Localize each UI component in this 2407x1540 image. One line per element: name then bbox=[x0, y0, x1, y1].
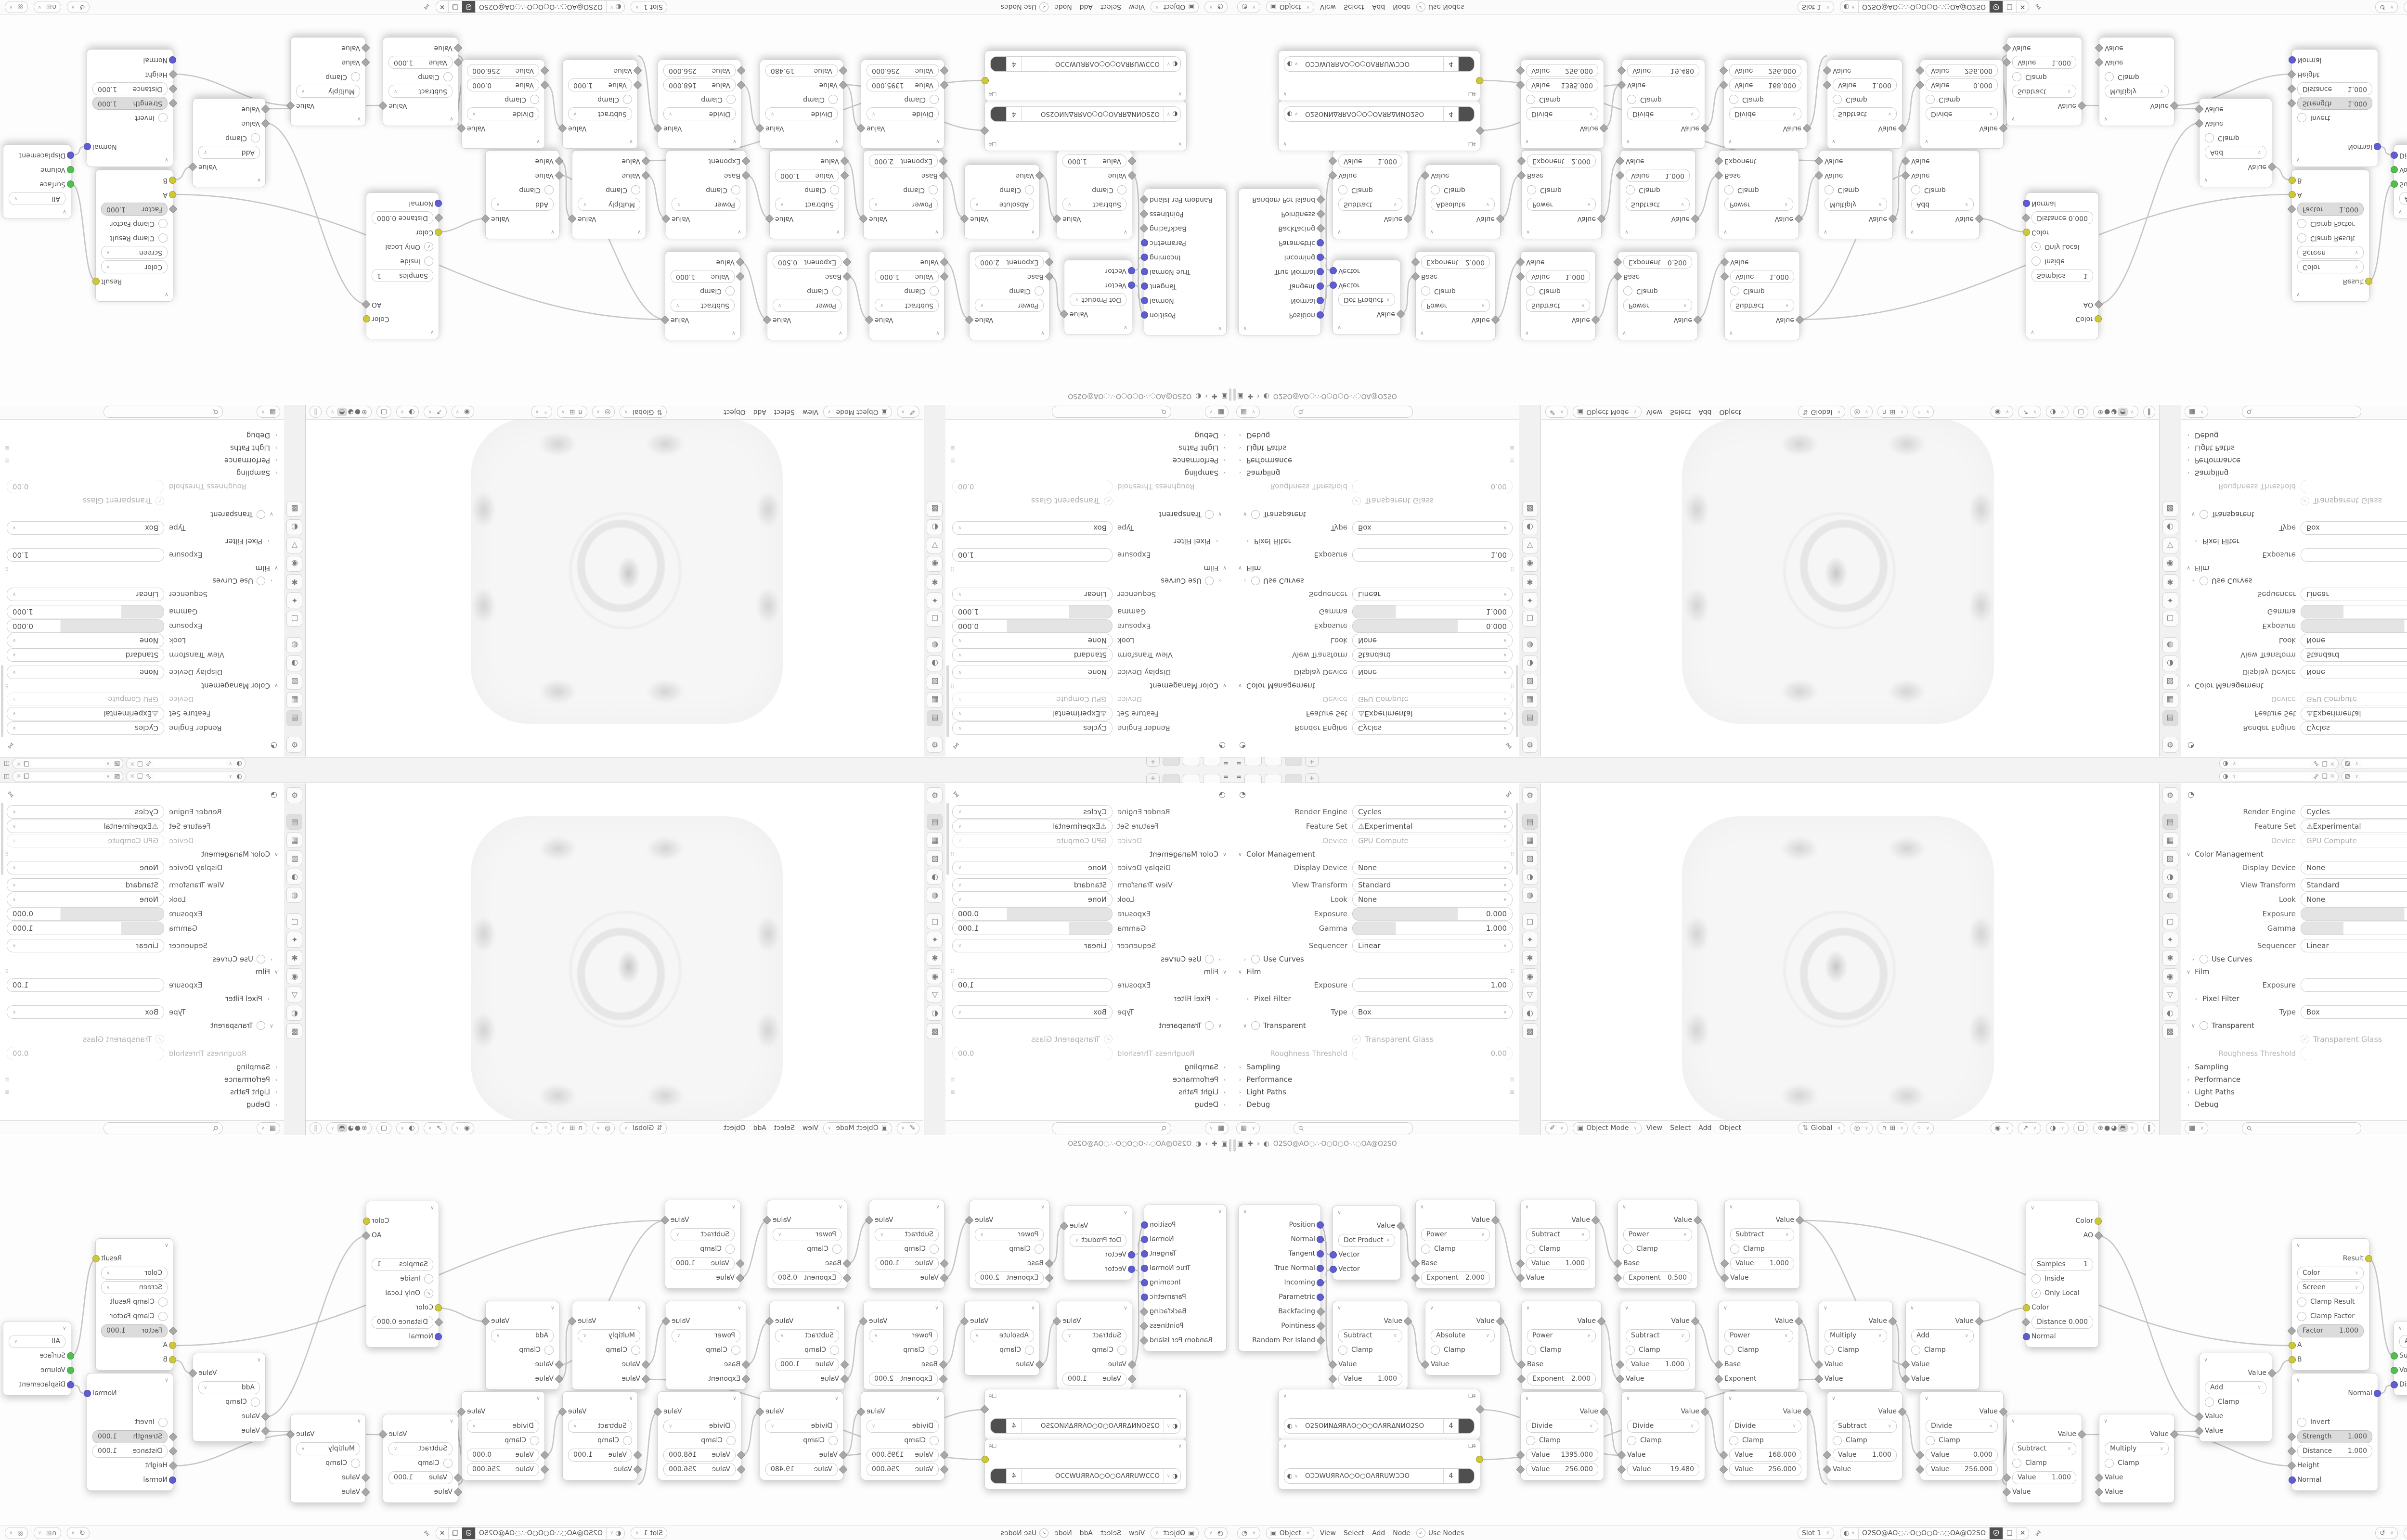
menu-select[interactable]: Select bbox=[1344, 3, 1364, 11]
input-socket[interactable] bbox=[435, 1304, 442, 1311]
pin-icon[interactable] bbox=[423, 4, 430, 11]
node-collapse-chevron[interactable]: ∨ bbox=[1920, 136, 2003, 148]
number-field[interactable]: Value1.000 bbox=[775, 169, 839, 182]
properties-tab-scene[interactable]: ◑ bbox=[287, 869, 303, 885]
panel-header-use-curves[interactable]: ›Use Curves bbox=[0, 575, 284, 587]
node-math[interactable]: ∨ValuePower∨ClampBaseExponent bbox=[1719, 150, 1799, 239]
view-layer-selector[interactable]: ▧∨❏✕ bbox=[2342, 758, 2407, 770]
header-tool-icon-2[interactable]: ◎∨ bbox=[5, 1527, 28, 1539]
checkbox[interactable]: ✓ bbox=[2032, 243, 2041, 252]
number-field[interactable]: Factor1.000 bbox=[2297, 203, 2364, 216]
mode-dropdown[interactable]: ▣Object Mode∨ bbox=[823, 1122, 892, 1134]
visibility-dropdown[interactable]: ◉∨ bbox=[452, 1122, 475, 1134]
hamburger-menu-icon[interactable]: ≡ bbox=[1236, 760, 1242, 768]
panel-header-transparent[interactable]: ∨Transparent bbox=[2181, 508, 2407, 521]
input-socket[interactable] bbox=[2023, 200, 2030, 207]
panel-header-film[interactable]: ∨Film⠿ bbox=[945, 965, 1232, 978]
properties-tab-output[interactable]: ▦ bbox=[2162, 692, 2178, 708]
panel-header-light-paths[interactable]: ›Light Paths≣ bbox=[2181, 442, 2407, 454]
dropdown-type[interactable]: Box∨ bbox=[2301, 521, 2407, 535]
panel-header-light-paths[interactable]: ›Light Paths≣ bbox=[0, 1086, 284, 1098]
users-count[interactable]: 4 bbox=[1007, 57, 1022, 71]
dropdown-type[interactable]: Box∨ bbox=[2301, 1005, 2407, 1019]
dropdown-look[interactable]: None∨ bbox=[7, 893, 164, 906]
node-collapse-chevron[interactable]: ∨ bbox=[864, 226, 943, 239]
node-link[interactable] bbox=[266, 1236, 367, 1417]
dropdown-type[interactable]: Box∨ bbox=[1352, 521, 1513, 535]
overlays-dropdown[interactable]: ◑∨ bbox=[396, 406, 419, 418]
checkbox[interactable] bbox=[1627, 1436, 1636, 1445]
output-socket[interactable] bbox=[982, 77, 989, 84]
node-math[interactable]: ∨ValueSubtract∨ClampValue1.000Value bbox=[869, 1200, 945, 1289]
node-bump[interactable]: ∨NormalInvertStrength1.000Distance1.000H… bbox=[2291, 1373, 2378, 1491]
snap-controls[interactable]: ∩⊞∨ bbox=[557, 406, 587, 418]
pin-icon[interactable] bbox=[145, 773, 152, 780]
enum-dropdown[interactable]: Subtract∨ bbox=[568, 108, 632, 121]
shader-node-editor[interactable]: ▣✚›◐O2SO@AO◌∴·O○O○O·∴◌OA@O2SO∨PositionNo… bbox=[1232, 1136, 2407, 1526]
number-field[interactable]: Exponent0.500 bbox=[1623, 256, 1692, 269]
node-image-datablock[interactable]: ∨❏4◐∨OƆƆWUЯRΛO○O○OΛЯRUWƆƆO4 bbox=[984, 51, 1187, 101]
node-link[interactable] bbox=[847, 1220, 870, 1264]
node-math[interactable]: ∨ValuePower∨ClampBaseExponent2.000 bbox=[863, 1301, 944, 1390]
panel-header-film[interactable]: ∨Film⠿ bbox=[1232, 562, 1519, 575]
checkbox[interactable] bbox=[2032, 1274, 2041, 1283]
panel-header-use-curves[interactable]: ›Use Curves bbox=[1232, 575, 1519, 587]
node-collapse-chevron[interactable]: ∨ bbox=[2292, 289, 2369, 301]
node-link[interactable] bbox=[1595, 1220, 1618, 1264]
pivot-dropdown[interactable]: ◎∨ bbox=[592, 406, 615, 418]
properties-tab-scene[interactable]: ◑ bbox=[2162, 869, 2178, 885]
dropdown-sequencer[interactable]: Linear∨ bbox=[7, 939, 164, 952]
node-math[interactable]: ∨ValueSubtract∨ClampValue1.000Value bbox=[1520, 251, 1596, 340]
number-field[interactable]: Value1395.000 bbox=[1526, 1449, 1598, 1462]
properties-tab-material[interactable]: ◐ bbox=[2162, 1005, 2178, 1021]
node-mix-color[interactable]: ∨ResultColor∨Screen∨Clamp ResultClamp Fa… bbox=[2291, 1238, 2369, 1371]
node-link[interactable] bbox=[71, 184, 96, 281]
header-tool-icon-1[interactable]: ∩⊞∨ bbox=[34, 1, 61, 13]
enum-dropdown[interactable]: Power∨ bbox=[773, 299, 841, 312]
node-link[interactable] bbox=[1495, 1220, 1520, 1278]
pin-icon[interactable] bbox=[952, 791, 959, 798]
enum-dropdown[interactable]: Subtract∨ bbox=[1062, 1329, 1126, 1342]
node-link[interactable] bbox=[945, 1220, 970, 1278]
checkbox[interactable] bbox=[2297, 1312, 2306, 1321]
node-link[interactable] bbox=[1892, 161, 1905, 218]
node-link[interactable] bbox=[2368, 184, 2394, 281]
properties-tab-physics[interactable]: ◉ bbox=[927, 968, 943, 984]
datablock-selector[interactable]: ◐∨O2SOИNΔЯRΛO○O○OΛЯRΔNИO2SO4 bbox=[990, 1418, 1181, 1434]
number-field[interactable]: Value1.000 bbox=[388, 1471, 453, 1484]
dropdown-device[interactable]: GPU Compute∨ bbox=[1352, 834, 1513, 847]
shading-mode-2[interactable]: ◕ bbox=[2111, 1124, 2117, 1132]
scrollbar[interactable] bbox=[946, 803, 949, 875]
node-link[interactable] bbox=[1400, 276, 1415, 314]
number-field[interactable]: Value256.000 bbox=[1729, 1463, 1801, 1476]
node-math[interactable]: ∨ValueSubtract∨ClampValueValue1.000 bbox=[1333, 1301, 1408, 1390]
number-field[interactable]: Samples1 bbox=[2032, 1258, 2093, 1271]
checkbox[interactable] bbox=[1431, 186, 1440, 195]
workspace-tab[interactable] bbox=[1265, 757, 1282, 767]
use-nodes-checkbox[interactable]: ✓Use Nodes bbox=[1416, 1528, 1464, 1538]
properties-tab-output[interactable]: ▦ bbox=[927, 832, 943, 848]
node-math[interactable]: ∨ValuePower∨ClampBaseExponent2.000 bbox=[1521, 1301, 1602, 1390]
view-layer-name-field[interactable] bbox=[2361, 760, 2407, 768]
properties-tab-modifiers[interactable]: ✦ bbox=[2162, 592, 2178, 608]
checkbox[interactable] bbox=[1724, 1346, 1734, 1355]
panel-header-pixel-filter[interactable]: ›Pixel Filter bbox=[0, 992, 284, 1005]
enum-dropdown[interactable]: Dot Product∨ bbox=[1338, 1234, 1395, 1247]
orientation-dropdown[interactable]: ⇅Global∨ bbox=[620, 406, 667, 418]
editor-type-button[interactable]: ▦∨ bbox=[1236, 406, 1260, 418]
checkbox[interactable] bbox=[930, 1436, 939, 1445]
panel-header-color-management[interactable]: ∨Color Management⠿ bbox=[0, 680, 284, 692]
panel-header-light-paths[interactable]: ›Light Paths≣ bbox=[945, 442, 1232, 454]
number-field[interactable]: Samples1 bbox=[372, 1258, 433, 1271]
properties-tab-texture[interactable]: ▩ bbox=[1522, 501, 1538, 517]
node-image-datablock[interactable]: ∨❏4◐∨OƆƆWUЯRΛO○O○OΛЯRUWƆƆO4 bbox=[1278, 51, 1480, 101]
properties-tab-tool[interactable]: ⚙ bbox=[2162, 787, 2178, 803]
node-math[interactable]: ∨ValueAdd∨ClampValueValue bbox=[2199, 98, 2272, 187]
node-collapse-chevron[interactable]: ∨ bbox=[970, 1200, 1049, 1213]
pivot-dropdown[interactable]: ◎∨ bbox=[1850, 1122, 1873, 1134]
node-collapse-chevron[interactable]: ∨ bbox=[1620, 226, 1695, 239]
node-collapse-chevron[interactable]: ∨ bbox=[1333, 226, 1408, 239]
menu-node[interactable]: Node bbox=[1054, 1529, 1072, 1537]
output-socket[interactable] bbox=[1317, 239, 1324, 246]
properties-tab-scene[interactable]: ◑ bbox=[927, 655, 943, 671]
output-socket[interactable] bbox=[2374, 1390, 2381, 1397]
node-math[interactable]: ∨ValueMultiply∨ClampValueValue bbox=[2099, 37, 2174, 126]
node-collapse-chevron[interactable]: ∨ bbox=[1819, 1301, 1892, 1314]
enum-dropdown[interactable]: Power∨ bbox=[1421, 299, 1490, 312]
editor-type-button[interactable]: ▦∨ bbox=[2185, 1122, 2208, 1134]
search-input[interactable] bbox=[1052, 1122, 1171, 1134]
panel-header-film[interactable]: ∨Film⠿ bbox=[0, 965, 284, 978]
viewport-3d[interactable]: ✐∨▣Object Mode∨ViewSelectAddObject⇅Globa… bbox=[1541, 783, 2159, 1135]
shading-mode-1[interactable]: ● bbox=[355, 1124, 361, 1132]
node-link[interactable] bbox=[1704, 1412, 1723, 1455]
value-field[interactable]: 0.000 bbox=[7, 907, 164, 921]
panel-header-pixel-filter[interactable]: ›Pixel Filter bbox=[945, 535, 1232, 548]
node-link[interactable] bbox=[944, 1322, 965, 1365]
proportional-edit-controls[interactable]: ◦∨ bbox=[1913, 406, 1934, 418]
value-field[interactable]: 0.000 bbox=[7, 619, 164, 633]
number-field[interactable]: Strength1.000 bbox=[2297, 97, 2372, 110]
properties-tab-world[interactable]: ◍ bbox=[2162, 887, 2178, 903]
properties-tab-physics[interactable]: ◉ bbox=[287, 556, 303, 572]
node-collapse-chevron[interactable]: ∨ bbox=[563, 1392, 637, 1404]
menu-view[interactable]: View bbox=[802, 408, 818, 416]
panel-header-sampling[interactable]: ›Sampling bbox=[2181, 1061, 2407, 1073]
menu-select[interactable]: Select bbox=[1670, 408, 1691, 416]
checkbox[interactable]: ✓ bbox=[2301, 1035, 2309, 1043]
node-collapse-chevron[interactable]: ∨ bbox=[1333, 1301, 1408, 1314]
node-collapse-chevron[interactable]: ∨ bbox=[2007, 1414, 2082, 1427]
checkbox[interactable] bbox=[158, 219, 168, 229]
node-vector-math[interactable]: ∨ValueDot Product∨VectorVector bbox=[1333, 260, 1401, 334]
editor-type-button[interactable]: ▦∨ bbox=[1236, 1122, 1260, 1134]
enum-dropdown[interactable]: Power∨ bbox=[869, 1329, 938, 1342]
material-datablock-selector[interactable]: ◐∨O2SO@AO◌∴·O○O○O·∴◌OA@O2SO❏✕ bbox=[436, 1527, 625, 1540]
fake-user-shield-icon[interactable] bbox=[1458, 107, 1474, 121]
input-socket[interactable] bbox=[169, 177, 176, 184]
properties-tab-physics[interactable]: ◉ bbox=[2162, 556, 2178, 572]
output-socket[interactable] bbox=[2374, 143, 2381, 150]
number-field[interactable]: Value19.480 bbox=[1627, 64, 1699, 77]
panel-header-film[interactable]: ∨Film⠿ bbox=[0, 562, 284, 575]
output-socket[interactable] bbox=[363, 1218, 370, 1225]
properties-tab-object[interactable]: ▢ bbox=[1522, 913, 1538, 929]
enum-dropdown[interactable]: Subtract∨ bbox=[775, 198, 839, 211]
datablock-selector[interactable]: ◐∨OƆƆWUЯRΛO○O○OΛЯRUWƆƆO4 bbox=[1284, 56, 1475, 72]
visibility-dropdown[interactable]: ◉∨ bbox=[452, 406, 475, 418]
checkbox[interactable] bbox=[1431, 1346, 1440, 1355]
properties-tab-physics[interactable]: ◉ bbox=[927, 556, 943, 572]
checkbox[interactable] bbox=[2297, 234, 2306, 243]
enum-dropdown[interactable]: Dot Product∨ bbox=[1070, 294, 1126, 307]
checkbox[interactable] bbox=[1627, 95, 1636, 104]
enum-dropdown[interactable]: Power∨ bbox=[1623, 299, 1692, 312]
enum-dropdown[interactable]: Add∨ bbox=[1911, 1329, 1974, 1342]
panel-header-debug[interactable]: ›Debug bbox=[0, 1098, 284, 1111]
menu-add[interactable]: Add bbox=[1372, 3, 1385, 11]
checkbox[interactable]: ✓ bbox=[2301, 497, 2309, 505]
enum-dropdown[interactable]: Add∨ bbox=[2205, 146, 2266, 159]
value-field[interactable]: 0.000 bbox=[1352, 619, 1513, 633]
checkbox[interactable] bbox=[631, 186, 640, 195]
search-input[interactable] bbox=[1052, 406, 1171, 418]
dropdown-view-transform[interactable]: Standard∨ bbox=[952, 648, 1113, 662]
node-link[interactable] bbox=[2098, 123, 2199, 304]
input-socket[interactable] bbox=[2289, 177, 2296, 184]
checkbox[interactable] bbox=[1338, 186, 1347, 195]
output-socket[interactable] bbox=[1141, 282, 1148, 290]
orientation-dropdown[interactable]: ⇅Global∨ bbox=[1798, 406, 1845, 418]
enum-dropdown[interactable]: Divide∨ bbox=[867, 108, 939, 121]
scrollbar[interactable] bbox=[1233, 388, 1236, 401]
properties-tab-modifiers[interactable]: ✦ bbox=[927, 932, 943, 948]
node-collapse-chevron[interactable]: ∨ bbox=[1144, 322, 1226, 335]
properties-tab-output[interactable]: ▦ bbox=[927, 692, 943, 708]
menu-node[interactable]: Node bbox=[1054, 3, 1072, 11]
checkbox[interactable] bbox=[930, 1245, 939, 1254]
node-collapse-chevron[interactable]: ∨❏4 bbox=[985, 1389, 1186, 1402]
panel-header-performance[interactable]: ›Performance≣ bbox=[0, 1073, 284, 1086]
panel-header-performance[interactable]: ›Performance≣ bbox=[945, 454, 1232, 467]
fake-user-shield-icon[interactable] bbox=[462, 1, 476, 13]
node-link[interactable] bbox=[1806, 56, 1827, 128]
node-collapse-chevron[interactable]: ∨ bbox=[383, 113, 458, 126]
number-field[interactable]: Value256.000 bbox=[1729, 64, 1801, 77]
dropdown-feature-set[interactable]: ⚠Experimental∨ bbox=[952, 707, 1113, 720]
node-collapse-chevron[interactable]: ∨ bbox=[1906, 226, 1979, 239]
shading-mode-3[interactable]: ◓ bbox=[2118, 1124, 2127, 1132]
node-link[interactable] bbox=[559, 161, 573, 218]
properties-tab-tool[interactable]: ⚙ bbox=[287, 787, 303, 803]
panel-header-transparent[interactable]: ∨Transparent bbox=[1232, 1019, 1519, 1032]
node-math[interactable]: ∨ValueSubtract∨ClampValue1.000Value bbox=[769, 1301, 845, 1390]
dropdown-device[interactable]: GPU Compute∨ bbox=[1352, 693, 1513, 706]
number-field[interactable]: Value0.000 bbox=[1926, 79, 1998, 92]
panel-header-film[interactable]: ∨Film⠿ bbox=[1232, 965, 1519, 978]
dropdown-type[interactable]: Box∨ bbox=[7, 521, 164, 535]
output-socket[interactable] bbox=[2365, 1255, 2372, 1262]
node-math[interactable]: ∨ValuePower∨ClampBaseExponent0.500 bbox=[767, 1200, 847, 1289]
enum-dropdown[interactable]: Subtract∨ bbox=[1833, 1420, 1897, 1433]
checkbox[interactable] bbox=[2012, 1459, 2021, 1468]
number-field[interactable]: Value256.000 bbox=[1926, 64, 1998, 77]
shading-mode-3[interactable]: ◓ bbox=[337, 1124, 347, 1132]
node-link[interactable] bbox=[545, 1412, 563, 1455]
dropdown-look[interactable]: None∨ bbox=[952, 634, 1113, 647]
checkbox[interactable] bbox=[2297, 219, 2306, 229]
node-link[interactable] bbox=[1798, 1322, 1819, 1365]
input-socket[interactable] bbox=[169, 1342, 176, 1349]
output-socket[interactable] bbox=[2095, 1218, 2102, 1225]
node-math[interactable]: ∨ValueAdd∨ClampValueValue bbox=[193, 98, 266, 187]
view-layer-selector[interactable]: ▧∨❏✕ bbox=[2342, 771, 2407, 782]
number-field[interactable]: Exponent0.500 bbox=[1623, 1271, 1692, 1284]
output-socket[interactable] bbox=[2365, 278, 2372, 285]
panel-header-sampling[interactable]: ›Sampling bbox=[0, 467, 284, 479]
gizmo-dropdown[interactable]: ↗∨ bbox=[2018, 1122, 2041, 1134]
properties-tab-particles[interactable]: ✱ bbox=[927, 950, 943, 966]
input-socket[interactable] bbox=[2023, 1333, 2030, 1340]
value-field[interactable]: 1.000 bbox=[2301, 605, 2407, 618]
properties-tab-constraints[interactable]: ▽ bbox=[287, 538, 303, 553]
properties-tab-constraints[interactable]: ▽ bbox=[287, 987, 303, 1002]
node-link[interactable] bbox=[71, 1259, 96, 1356]
enum-dropdown[interactable]: Divide∨ bbox=[1729, 108, 1801, 121]
dropdown-type[interactable]: Box∨ bbox=[952, 521, 1113, 535]
node-material-output[interactable]: ∨All∨SurfaceVolumeDisplacement bbox=[3, 144, 71, 219]
panel-header-sampling[interactable]: ›Sampling bbox=[1232, 1061, 1519, 1073]
viewport-3d[interactable]: ✐∨▣Object Mode∨ViewSelectAddObject⇅Globa… bbox=[306, 783, 923, 1135]
node-math[interactable]: ∨ValueSubtract∨ClampValue1.000Value bbox=[769, 150, 845, 239]
number-field[interactable]: Value256.000 bbox=[1526, 1463, 1598, 1476]
node-math[interactable]: ∨ValueAbsolute∨ClampValue bbox=[1425, 165, 1501, 239]
dropdown-sequencer[interactable]: Linear∨ bbox=[7, 588, 164, 601]
enum-dropdown[interactable]: Add∨ bbox=[1911, 198, 1974, 211]
users-count[interactable]: 4 bbox=[1443, 107, 1458, 121]
output-socket[interactable] bbox=[1317, 311, 1324, 319]
value-field[interactable]: 0.00 bbox=[2301, 1047, 2407, 1060]
fake-user-shield-icon[interactable] bbox=[462, 1527, 476, 1539]
properties-tab-world[interactable]: ◍ bbox=[1522, 887, 1538, 903]
number-field[interactable]: Value1.000 bbox=[1338, 1373, 1402, 1386]
dropdown-look[interactable]: None∨ bbox=[952, 893, 1113, 906]
properties-tab-output[interactable]: ▦ bbox=[2162, 832, 2178, 848]
proportional-edit-controls[interactable]: ◦∨ bbox=[531, 1122, 552, 1134]
checkbox[interactable] bbox=[1526, 287, 1535, 296]
node-collapse-chevron[interactable]: ∨ bbox=[1521, 136, 1604, 148]
menu-select[interactable]: Select bbox=[1100, 3, 1121, 11]
menu-add[interactable]: Add bbox=[1080, 1529, 1093, 1537]
node-link[interactable] bbox=[545, 85, 563, 128]
xray-toggle[interactable]: ▢ bbox=[2073, 406, 2088, 418]
checkbox[interactable] bbox=[930, 95, 939, 104]
scrollbar[interactable] bbox=[1516, 803, 1518, 875]
number-field[interactable]: Value1.000 bbox=[671, 270, 735, 283]
output-socket[interactable] bbox=[1317, 297, 1324, 304]
editor-type-button[interactable]: ▦∨ bbox=[257, 406, 280, 418]
node-math[interactable]: ∨ValueDivide∨ClampValue168.000Value256.0… bbox=[658, 1391, 741, 1480]
node-collapse-chevron[interactable]: ∨ bbox=[1333, 321, 1400, 334]
panel-header-use-curves[interactable]: ›Use Curves bbox=[0, 953, 284, 965]
node-math[interactable]: ∨ValuePower∨ClampBaseExponent2.000 bbox=[1415, 251, 1496, 340]
enum-dropdown[interactable]: Subtract∨ bbox=[1526, 1228, 1590, 1241]
number-field[interactable]: Exponent2.000 bbox=[1421, 256, 1490, 269]
node-math[interactable]: ∨ValueSubtract∨ClampValueValue1.000 bbox=[1057, 150, 1132, 239]
scene-name-field[interactable] bbox=[2239, 773, 2311, 780]
input-socket[interactable] bbox=[1128, 282, 1135, 289]
value-field[interactable]: 0.00 bbox=[7, 480, 164, 493]
node-collapse-chevron[interactable]: ∨ bbox=[3, 206, 71, 218]
enum-dropdown[interactable]: Divide∨ bbox=[1526, 108, 1598, 121]
node-math[interactable]: ∨ValueSubtract∨ClampValueValue1.000 bbox=[1333, 150, 1408, 239]
node-collapse-chevron[interactable]: ∨ bbox=[2026, 1201, 2098, 1214]
value-field[interactable]: 1.00 bbox=[952, 978, 1113, 992]
node-collapse-chevron[interactable]: ∨ bbox=[366, 326, 439, 339]
panel-header-color-management[interactable]: ∨Color Management⠿ bbox=[1232, 848, 1519, 860]
node-math[interactable]: ∨ValuePower∨ClampBaseExponent2.000 bbox=[969, 1200, 1049, 1289]
number-field[interactable]: Value19.480 bbox=[765, 64, 838, 77]
menu-view[interactable]: View bbox=[1646, 1124, 1662, 1132]
properties-tab-output[interactable]: ▦ bbox=[287, 832, 303, 848]
dropdown-render-engine[interactable]: Cycles∨ bbox=[952, 721, 1113, 735]
shading-mode-2[interactable]: ◕ bbox=[348, 1124, 354, 1132]
node-math[interactable]: ∨ValuePower∨ClampBaseExponent bbox=[666, 1301, 746, 1390]
orientation-dropdown[interactable]: ⇅Global∨ bbox=[620, 1122, 667, 1134]
output-socket[interactable] bbox=[1141, 1236, 1148, 1243]
panel-header-light-paths[interactable]: ›Light Paths≣ bbox=[0, 442, 284, 454]
node-collapse-chevron[interactable]: ∨ bbox=[1521, 1200, 1595, 1213]
workspace-tab[interactable] bbox=[1285, 757, 1302, 767]
enum-dropdown[interactable]: Divide∨ bbox=[1926, 108, 1998, 121]
enum-dropdown[interactable]: Screen∨ bbox=[2297, 1281, 2364, 1294]
dropdown-render-engine[interactable]: Cycles∨ bbox=[7, 805, 164, 819]
properties-tab-physics[interactable]: ◉ bbox=[2162, 968, 2178, 984]
panel-header-use-curves[interactable]: ›Use Curves bbox=[1232, 953, 1519, 965]
scene-name-field[interactable] bbox=[154, 760, 226, 768]
workspace-tab[interactable] bbox=[1203, 774, 1220, 783]
panel-header-use-curves[interactable]: ›Use Curves bbox=[2181, 575, 2407, 587]
node-math[interactable]: ∨ValuePower∨ClampBaseExponent2.000 bbox=[1521, 150, 1602, 239]
shader-type-dropdown[interactable]: ▣Object∨ bbox=[1151, 1527, 1199, 1539]
number-field[interactable]: Factor1.000 bbox=[101, 203, 168, 216]
shading-mode-0[interactable]: ⊕ bbox=[2097, 1124, 2103, 1132]
slot-dropdown[interactable]: Slot 1∨ bbox=[1798, 1527, 1834, 1539]
dropdown-render-engine[interactable]: Cycles∨ bbox=[2301, 805, 2407, 819]
checkbox[interactable] bbox=[1911, 186, 1920, 195]
panel-header-transparent[interactable]: ∨Transparent bbox=[2181, 1019, 2407, 1032]
checkbox[interactable] bbox=[251, 134, 260, 143]
node-link[interactable] bbox=[1902, 1412, 1920, 1455]
menu-view[interactable]: View bbox=[1320, 1529, 1336, 1537]
properties-tab-world[interactable]: ◍ bbox=[287, 887, 303, 903]
node-link[interactable] bbox=[1695, 175, 1719, 218]
node-collapse-chevron[interactable]: ∨ bbox=[1622, 1392, 1705, 1404]
node-link[interactable] bbox=[740, 1220, 768, 1278]
value-field[interactable]: 0.00 bbox=[1352, 1047, 1513, 1060]
menu-object[interactable]: Object bbox=[1719, 1124, 1741, 1132]
properties-tab-particles[interactable]: ✱ bbox=[287, 950, 303, 966]
properties-tab-particles[interactable]: ✱ bbox=[2162, 574, 2178, 590]
input-socket[interactable] bbox=[1128, 267, 1135, 274]
input-socket[interactable] bbox=[2023, 1304, 2030, 1311]
scene-name-field[interactable] bbox=[2239, 760, 2311, 768]
node-link[interactable] bbox=[1601, 161, 1620, 218]
